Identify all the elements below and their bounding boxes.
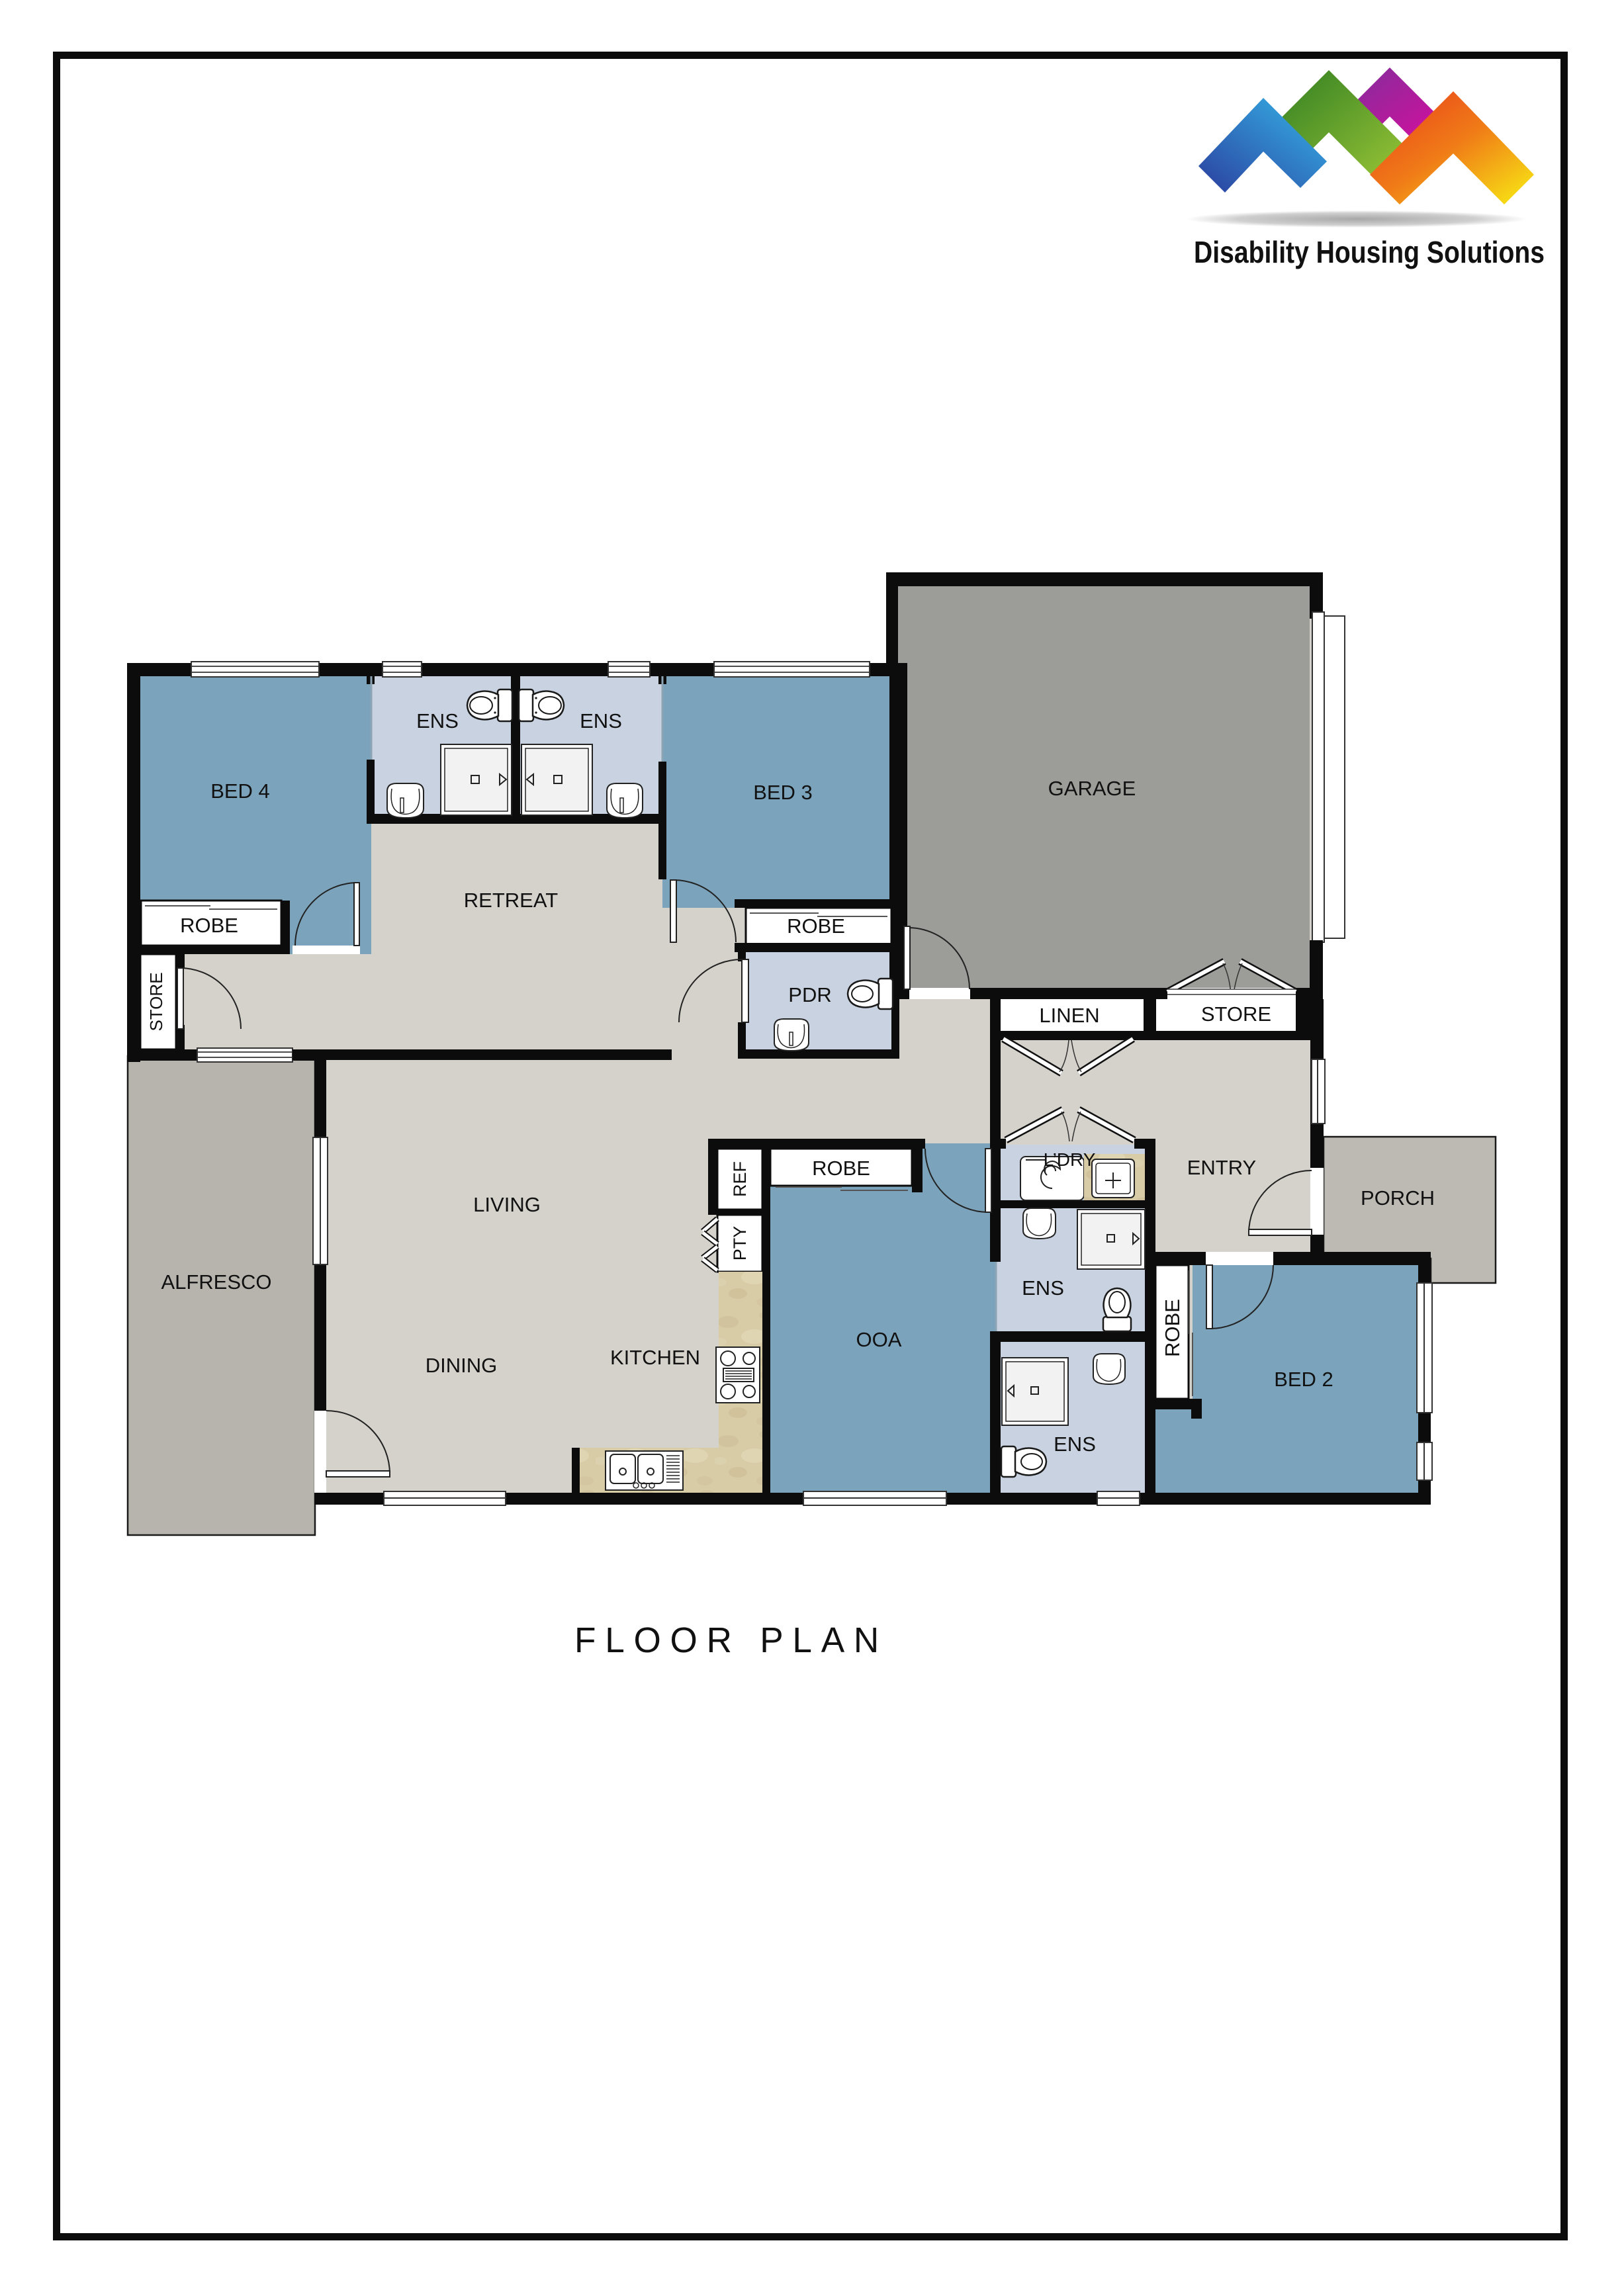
svg-text:LIVING: LIVING — [473, 1193, 541, 1216]
svg-text:BED 2: BED 2 — [1274, 1368, 1333, 1391]
svg-text:BED 3: BED 3 — [753, 781, 813, 804]
svg-text:ENS: ENS — [1054, 1433, 1096, 1456]
svg-text:ROBE: ROBE — [812, 1157, 870, 1180]
svg-text:PTY: PTY — [730, 1226, 750, 1261]
svg-text:STORE: STORE — [1201, 1002, 1271, 1026]
svg-text:KITCHEN: KITCHEN — [610, 1346, 700, 1369]
svg-text:LINEN: LINEN — [1039, 1004, 1099, 1027]
svg-text:OOA: OOA — [856, 1328, 902, 1351]
svg-text:ENS: ENS — [1022, 1276, 1064, 1300]
svg-text:L’DRY: L’DRY — [1044, 1149, 1096, 1170]
svg-text:ENTRY: ENTRY — [1187, 1156, 1257, 1179]
svg-text:DINING: DINING — [426, 1354, 498, 1377]
svg-text:ENS: ENS — [580, 709, 622, 732]
svg-text:RETREAT: RETREAT — [464, 889, 558, 912]
svg-text:ALFRESCO: ALFRESCO — [161, 1270, 271, 1294]
svg-text:GARAGE: GARAGE — [1048, 777, 1136, 800]
svg-text:PDR: PDR — [788, 983, 831, 1006]
svg-text:ROBE: ROBE — [787, 914, 845, 938]
svg-text:FLOOR PLAN: FLOOR PLAN — [574, 1620, 888, 1660]
svg-text:ROBE: ROBE — [180, 914, 238, 937]
svg-text:PORCH: PORCH — [1361, 1186, 1435, 1210]
svg-text:REF: REF — [730, 1161, 750, 1197]
svg-text:BED 4: BED 4 — [210, 779, 270, 803]
svg-text:Disability Housing Solutions: Disability Housing Solutions — [1194, 235, 1545, 269]
svg-text:ROBE: ROBE — [1161, 1299, 1184, 1357]
svg-text:ENS: ENS — [416, 709, 459, 732]
svg-text:STORE: STORE — [146, 972, 166, 1031]
